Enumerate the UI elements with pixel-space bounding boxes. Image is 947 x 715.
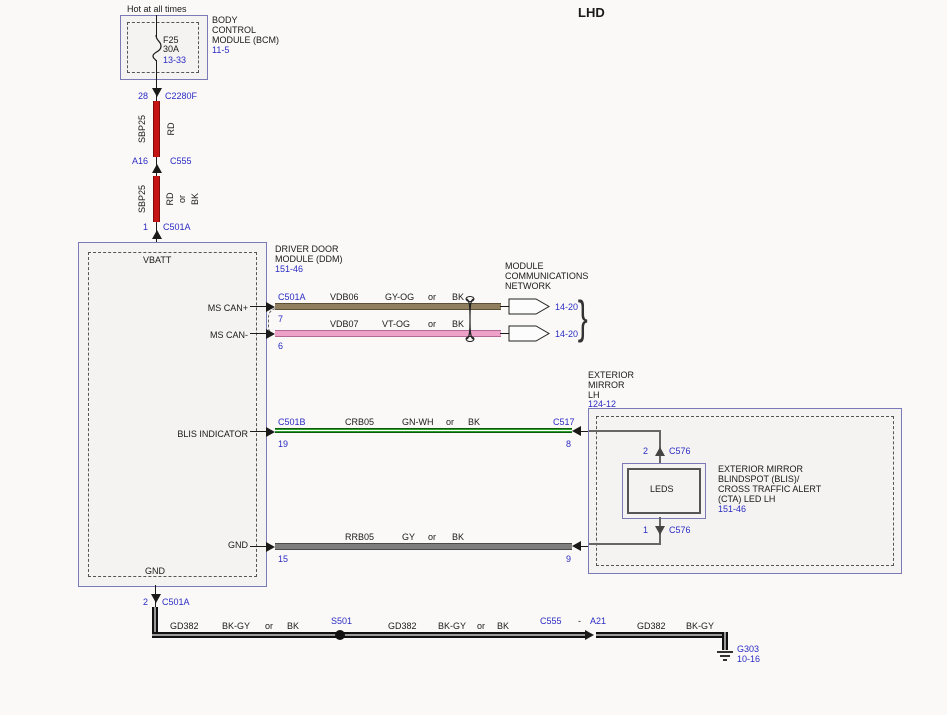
page-title: LHD: [578, 8, 605, 18]
gnd-or: or: [428, 532, 436, 542]
network-label-1: MODULE: [505, 261, 544, 271]
pin-9: 9: [566, 554, 571, 564]
network-label-3: NETWORK: [505, 281, 551, 291]
blis-color: GN-WH: [402, 417, 434, 427]
gd382-or-1: or: [265, 621, 273, 631]
ground-g303: G303: [737, 644, 759, 654]
ddm-gnd-bottom-label: GND: [145, 566, 165, 576]
pin-28: 28: [128, 91, 148, 101]
connector-arrow-left-icon: [572, 426, 581, 436]
gnd-color: GY: [402, 532, 415, 542]
ddm-title-1: DRIVER DOOR: [275, 244, 339, 254]
led-desc-4: (CTA) LED LH: [718, 494, 775, 504]
bcm-label-2: CONTROL: [212, 25, 256, 35]
connector-c2280f: C2280F: [165, 91, 197, 101]
ground-symbol-icon: [720, 655, 730, 657]
pin-1: 1: [130, 222, 148, 232]
network-ref-1: 14-20: [555, 302, 578, 312]
network-connector-icon: [508, 325, 550, 342]
bcm-label-3: MODULE (BCM): [212, 35, 279, 45]
pin-7: 7: [278, 314, 283, 324]
connector-arrow-down-icon: [655, 526, 665, 535]
pin-a16: A16: [122, 156, 148, 166]
gd382-circuit-2: GD382: [388, 621, 417, 631]
connector-c501b: C501B: [278, 417, 306, 427]
ddm-ms-can-plus-label: MS CAN+: [160, 303, 248, 313]
pin-6: 6: [278, 341, 283, 351]
pin-19: 19: [278, 439, 288, 449]
can-p-color: GY-OG: [385, 292, 414, 302]
wire-color-rd-2: RD: [165, 193, 175, 206]
connector-c555-bottom: C555: [540, 616, 562, 626]
pin-2: 2: [130, 597, 148, 607]
blis-indicator-wire: [275, 428, 572, 433]
connector-c501a-bottom: C501A: [162, 597, 190, 607]
ddm-gnd-label: GND: [160, 540, 248, 550]
wire-circuit-sbp25-2: SBP25: [137, 185, 147, 213]
fuse-lead-bottom: [156, 60, 157, 78]
ddm-blis-indicator-label: BLIS INDICATOR: [150, 429, 248, 439]
connector-arrow-right-icon: [585, 630, 594, 640]
connector-dash: -: [578, 616, 581, 626]
wire-color-or-2: or: [177, 195, 187, 203]
ground-symbol-icon: [723, 659, 727, 661]
twisted-pair-icon: [458, 296, 482, 342]
ddm-ms-can-minus-label: MS CAN-: [160, 330, 248, 340]
connector-arrow-down-icon: [152, 88, 162, 97]
connector-arrow-left-icon: [572, 541, 581, 551]
fuse-rating: 30A: [163, 44, 179, 54]
led-page-ref: 151-46: [718, 504, 746, 514]
connector-arrow-up-icon: [655, 447, 665, 456]
can-p-or: or: [428, 292, 436, 302]
gnd-return-wire: [275, 543, 572, 550]
can-n-stub: [250, 333, 266, 334]
blis-stub: [250, 431, 266, 432]
gd382-circuit-1: GD382: [170, 621, 199, 631]
led-desc-2: BLINDSPOT (BLIS)/: [718, 474, 799, 484]
mirror-wire-bot-h: [589, 543, 661, 545]
network-ref-2: 14-20: [555, 329, 578, 339]
gd382-color-3: BK-GY: [686, 621, 714, 631]
gd382-wire-seg2: [596, 632, 728, 638]
splice-dot-icon: [335, 630, 345, 640]
blis-or: or: [446, 417, 454, 427]
sbp25-wire-seg1: [153, 101, 160, 157]
splice-s501-label: S501: [331, 616, 352, 626]
can-p-stub: [250, 306, 266, 307]
gd382-color-1: BK-GY: [222, 621, 250, 631]
leds-label: LEDS: [650, 484, 674, 494]
bcm-page-ref: 11-5: [212, 45, 229, 55]
led-desc-3: CROSS TRAFFIC ALERT: [718, 484, 821, 494]
wiring-diagram: LHD Hot at all times F25 30A 13-33 BODY …: [0, 0, 947, 715]
wire-circuit-sbp25-1: SBP25: [137, 115, 147, 143]
connector-arrow-right-icon: [266, 427, 275, 437]
fuse-lead-top: [156, 15, 157, 37]
brace-icon: }: [578, 290, 588, 344]
ddm-box-inner: [88, 252, 257, 577]
mirror-title-1: EXTERIOR: [588, 370, 634, 380]
can-n-or: or: [428, 319, 436, 329]
led-desc-1: EXTERIOR MIRROR: [718, 464, 803, 474]
gd382-color-2: BK-GY: [438, 621, 466, 631]
pin-2-c576: 2: [630, 446, 648, 456]
connector-arrow-up-icon: [152, 230, 162, 239]
bcm-label-1: BODY: [212, 15, 238, 25]
can-p-circuit: VDB06: [330, 292, 359, 302]
sbp25-wire-seg2: [153, 176, 160, 222]
gd382-alt-2: BK: [497, 621, 509, 631]
connector-arrow-right-icon: [266, 329, 275, 339]
ground-symbol-icon: [717, 651, 733, 653]
network-connector-icon: [508, 298, 550, 315]
network-label-2: COMMUNICATIONS: [505, 271, 588, 281]
connector-c576-bottom: C576: [669, 525, 691, 535]
connector-c501a-top: C501A: [163, 222, 191, 232]
gnd-alt: BK: [452, 532, 464, 542]
mirror-wire-top-h: [589, 430, 661, 432]
connector-c576-top: C576: [669, 446, 691, 456]
blis-alt: BK: [468, 417, 480, 427]
pin-1-c576: 1: [630, 525, 648, 535]
gnd-circuit: RRB05: [345, 532, 374, 542]
gd382-wire-seg1: [152, 632, 585, 638]
blis-circuit: CRB05: [345, 417, 374, 427]
gd382-wire-drop: [722, 632, 728, 650]
gnd-stub: [250, 546, 266, 547]
mirror-title-2: MIRROR: [588, 380, 625, 390]
ddm-title-2: MODULE (DDM): [275, 254, 343, 264]
ground-page-ref: 10-16: [737, 654, 760, 664]
can-n-circuit: VDB07: [330, 319, 359, 329]
pin-8: 8: [566, 439, 571, 449]
gd382-circuit-3: GD382: [637, 621, 666, 631]
hot-at-all-times-label: Hot at all times: [127, 4, 187, 14]
wire-color-rd-1: RD: [166, 123, 176, 136]
connector-arrow-right-icon: [266, 542, 275, 552]
fuse-page-ref: 13-33: [163, 55, 186, 65]
pin-15: 15: [278, 554, 288, 564]
can-n-color: VT-OG: [382, 319, 410, 329]
gd382-alt-1: BK: [287, 621, 299, 631]
connector-arrow-up-icon: [152, 164, 162, 173]
pin-a21: A21: [590, 616, 606, 626]
connector-c501a-wire: C501A: [278, 292, 306, 302]
ddm-page-ref: 151-46: [275, 264, 303, 274]
connector-arrow-down-icon: [151, 594, 161, 603]
connector-c555: C555: [170, 156, 192, 166]
ddm-vbatt-label: VBATT: [143, 255, 171, 265]
gd382-or-2: or: [477, 621, 485, 631]
wire-color-bk-2: BK: [190, 193, 200, 205]
